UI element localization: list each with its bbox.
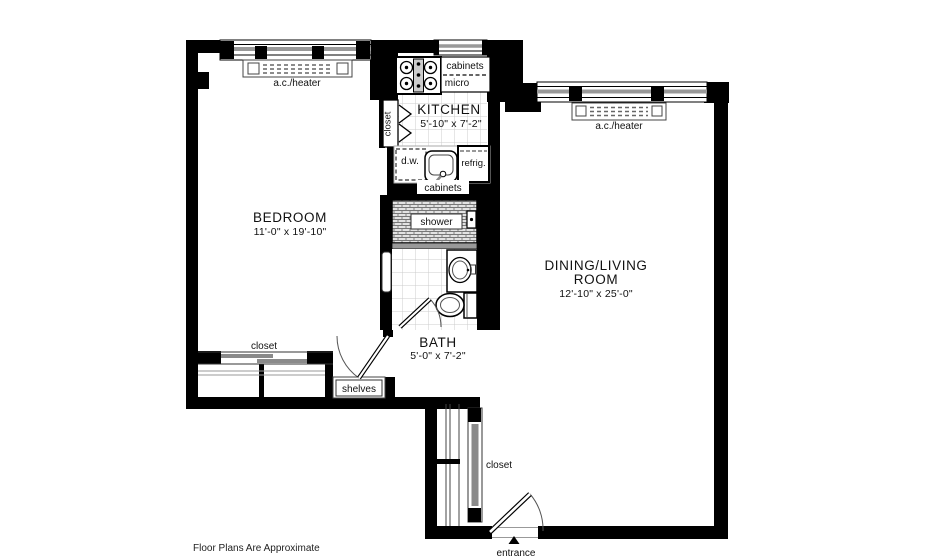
bath-name: BATH — [419, 335, 456, 350]
shower: shower — [392, 200, 477, 243]
cabinets-micro-unit: cabinets micro — [441, 57, 490, 92]
kitchen-name: KITCHEN — [417, 102, 480, 117]
shower-label: shower — [420, 217, 453, 228]
footer-note: Floor Plans Are Approximate — [193, 543, 320, 554]
bathroom-sink-icon — [447, 250, 477, 292]
dishwasher: d.w. — [396, 149, 426, 180]
kitchen-closet-label: closet — [383, 111, 394, 136]
entrance-marker: entrance — [497, 536, 536, 559]
stove-icon — [396, 57, 441, 94]
kitchen-sink-icon — [425, 151, 457, 184]
dining-dims: 12'-10" x 25'-0" — [559, 288, 633, 300]
closet-slider-door — [257, 359, 307, 363]
shower-threshold — [392, 243, 477, 249]
dining-name-line1: DINING/LIVING — [544, 258, 647, 273]
bedroom-name: BEDROOM — [253, 210, 327, 225]
ac-heater-label-bedroom: a.c./heater — [273, 78, 321, 89]
entrance-label: entrance — [497, 548, 536, 559]
closet-slider-door — [472, 424, 479, 506]
kitchen-dims: 5'-10" x 7'-2" — [420, 118, 482, 130]
closet-slider-door — [221, 354, 273, 358]
hall-closet-label: closet — [486, 460, 512, 471]
ac-heater-label-dining: a.c./heater — [595, 121, 643, 132]
ac-heater-unit-bedroom: a.c./heater — [243, 60, 352, 89]
cabinets-lower-label: cabinets — [424, 183, 461, 194]
bath-dims: 5'-0" x 7'-2" — [410, 350, 466, 362]
bedroom-room: a.c./heater BEDROOM 11'-0" x 19'-10" clo… — [198, 40, 388, 398]
refrigerator: refrig. — [458, 146, 489, 182]
kitchen-window — [434, 40, 487, 55]
entrance-door — [490, 494, 543, 538]
dishwasher-label: d.w. — [401, 156, 419, 167]
bedroom-window — [220, 40, 371, 60]
bedroom-closet-label: closet — [251, 341, 277, 352]
cabinets-lower: cabinets — [417, 180, 469, 194]
cabinets-upper-label: cabinets — [446, 61, 483, 72]
dining-window — [537, 82, 707, 102]
floor-plan-drawing: a.c./heater BEDROOM 11'-0" x 19'-10" clo… — [0, 0, 934, 560]
dining-name-line2: ROOM — [574, 272, 618, 287]
bath-room: shower BATH 5' — [382, 200, 477, 362]
bedroom-dims: 11'-0" x 19'-10" — [254, 226, 327, 238]
wall-niche — [382, 252, 391, 292]
hall-closet: closet — [437, 404, 512, 526]
kitchen-counter: d.w. refrig. — [394, 146, 490, 184]
door-swing-arc — [530, 494, 543, 531]
refrig-label: refrig. — [461, 158, 485, 169]
shelves-label: shelves — [342, 384, 376, 395]
floor-plan-page: a.c./heater BEDROOM 11'-0" x 19'-10" clo… — [0, 0, 934, 560]
dining-living-room: a.c./heater DINING/LIVING ROOM 12'-10" x… — [537, 82, 707, 300]
toilet-icon — [436, 293, 477, 318]
kitchen-room: cabinets micro closet KITCHEN 5'-10" x 7… — [383, 40, 491, 194]
micro-label: micro — [445, 78, 470, 89]
shelves-niche: shelves — [333, 377, 385, 398]
ac-heater-unit-dining: a.c./heater — [572, 103, 666, 132]
bedroom-door — [337, 336, 388, 378]
door-swing-arc — [337, 336, 359, 378]
